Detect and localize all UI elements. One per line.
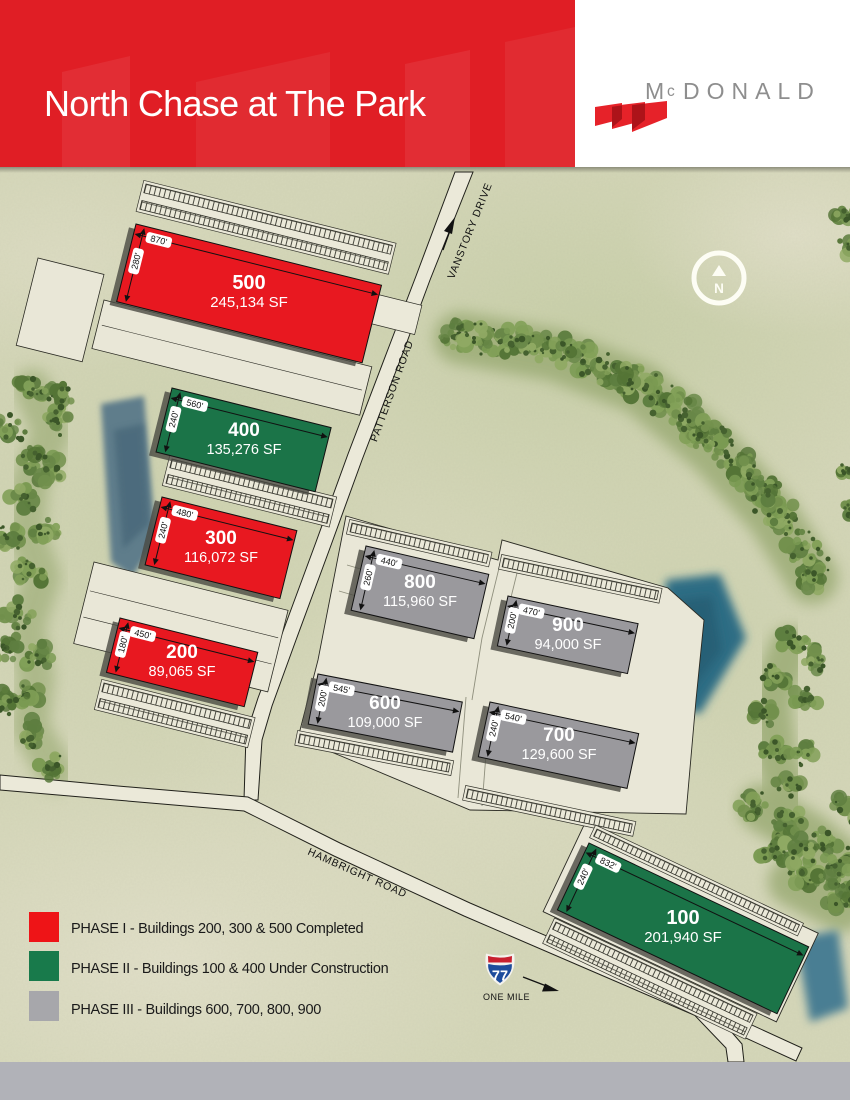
svg-text:ONE MILE: ONE MILE xyxy=(483,992,530,1002)
svg-text:N: N xyxy=(714,281,724,296)
svg-text:North Chase at The Park: North Chase at The Park xyxy=(44,83,427,124)
svg-text:116,072 SF: 116,072 SF xyxy=(184,550,258,566)
svg-text:129,600 SF: 129,600 SF xyxy=(522,747,597,763)
svg-text:200: 200 xyxy=(166,642,198,663)
svg-text:77: 77 xyxy=(492,969,508,985)
svg-text:PHASE I - Buildings 200, 300 &: PHASE I - Buildings 200, 300 & 500 Compl… xyxy=(71,921,364,937)
svg-text:100: 100 xyxy=(666,907,699,929)
svg-text:400: 400 xyxy=(228,420,260,441)
svg-text:800: 800 xyxy=(404,572,436,593)
svg-text:201,940 SF: 201,940 SF xyxy=(644,929,722,946)
svg-text:115,960 SF: 115,960 SF xyxy=(383,594,457,610)
svg-text:135,276 SF: 135,276 SF xyxy=(207,442,282,458)
svg-text:700: 700 xyxy=(543,725,575,746)
svg-text:245,134 SF: 245,134 SF xyxy=(210,294,288,311)
svg-text:600: 600 xyxy=(369,693,401,714)
svg-text:900: 900 xyxy=(552,615,584,636)
svg-text:DONALD: DONALD xyxy=(683,78,821,104)
svg-text:89,065 SF: 89,065 SF xyxy=(149,664,216,680)
svg-text:PHASE II - Buildings 100 & 400: PHASE II - Buildings 100 & 400 Under Con… xyxy=(71,961,389,977)
svg-text:M: M xyxy=(645,78,664,104)
svg-text:c: c xyxy=(667,83,675,100)
svg-text:94,000 SF: 94,000 SF xyxy=(535,637,602,653)
svg-text:PHASE III - Buildings 600, 700: PHASE III - Buildings 600, 700, 800, 900 xyxy=(71,1002,321,1018)
svg-text:500: 500 xyxy=(232,272,265,294)
svg-text:109,000 SF: 109,000 SF xyxy=(348,715,423,731)
svg-text:300: 300 xyxy=(205,528,237,549)
